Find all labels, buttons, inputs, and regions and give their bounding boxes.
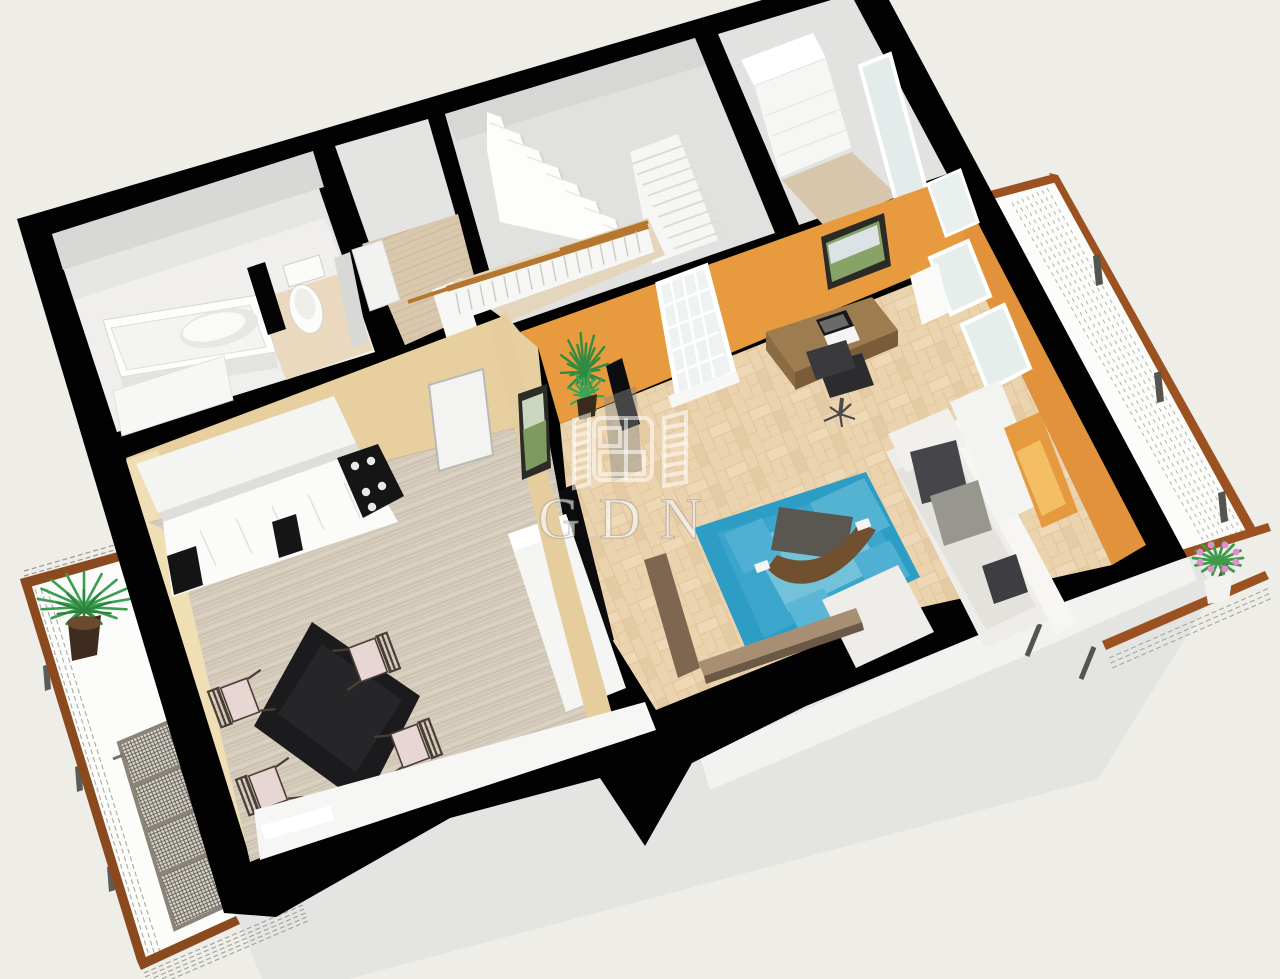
svg-text:GDN: GDN (538, 486, 721, 551)
